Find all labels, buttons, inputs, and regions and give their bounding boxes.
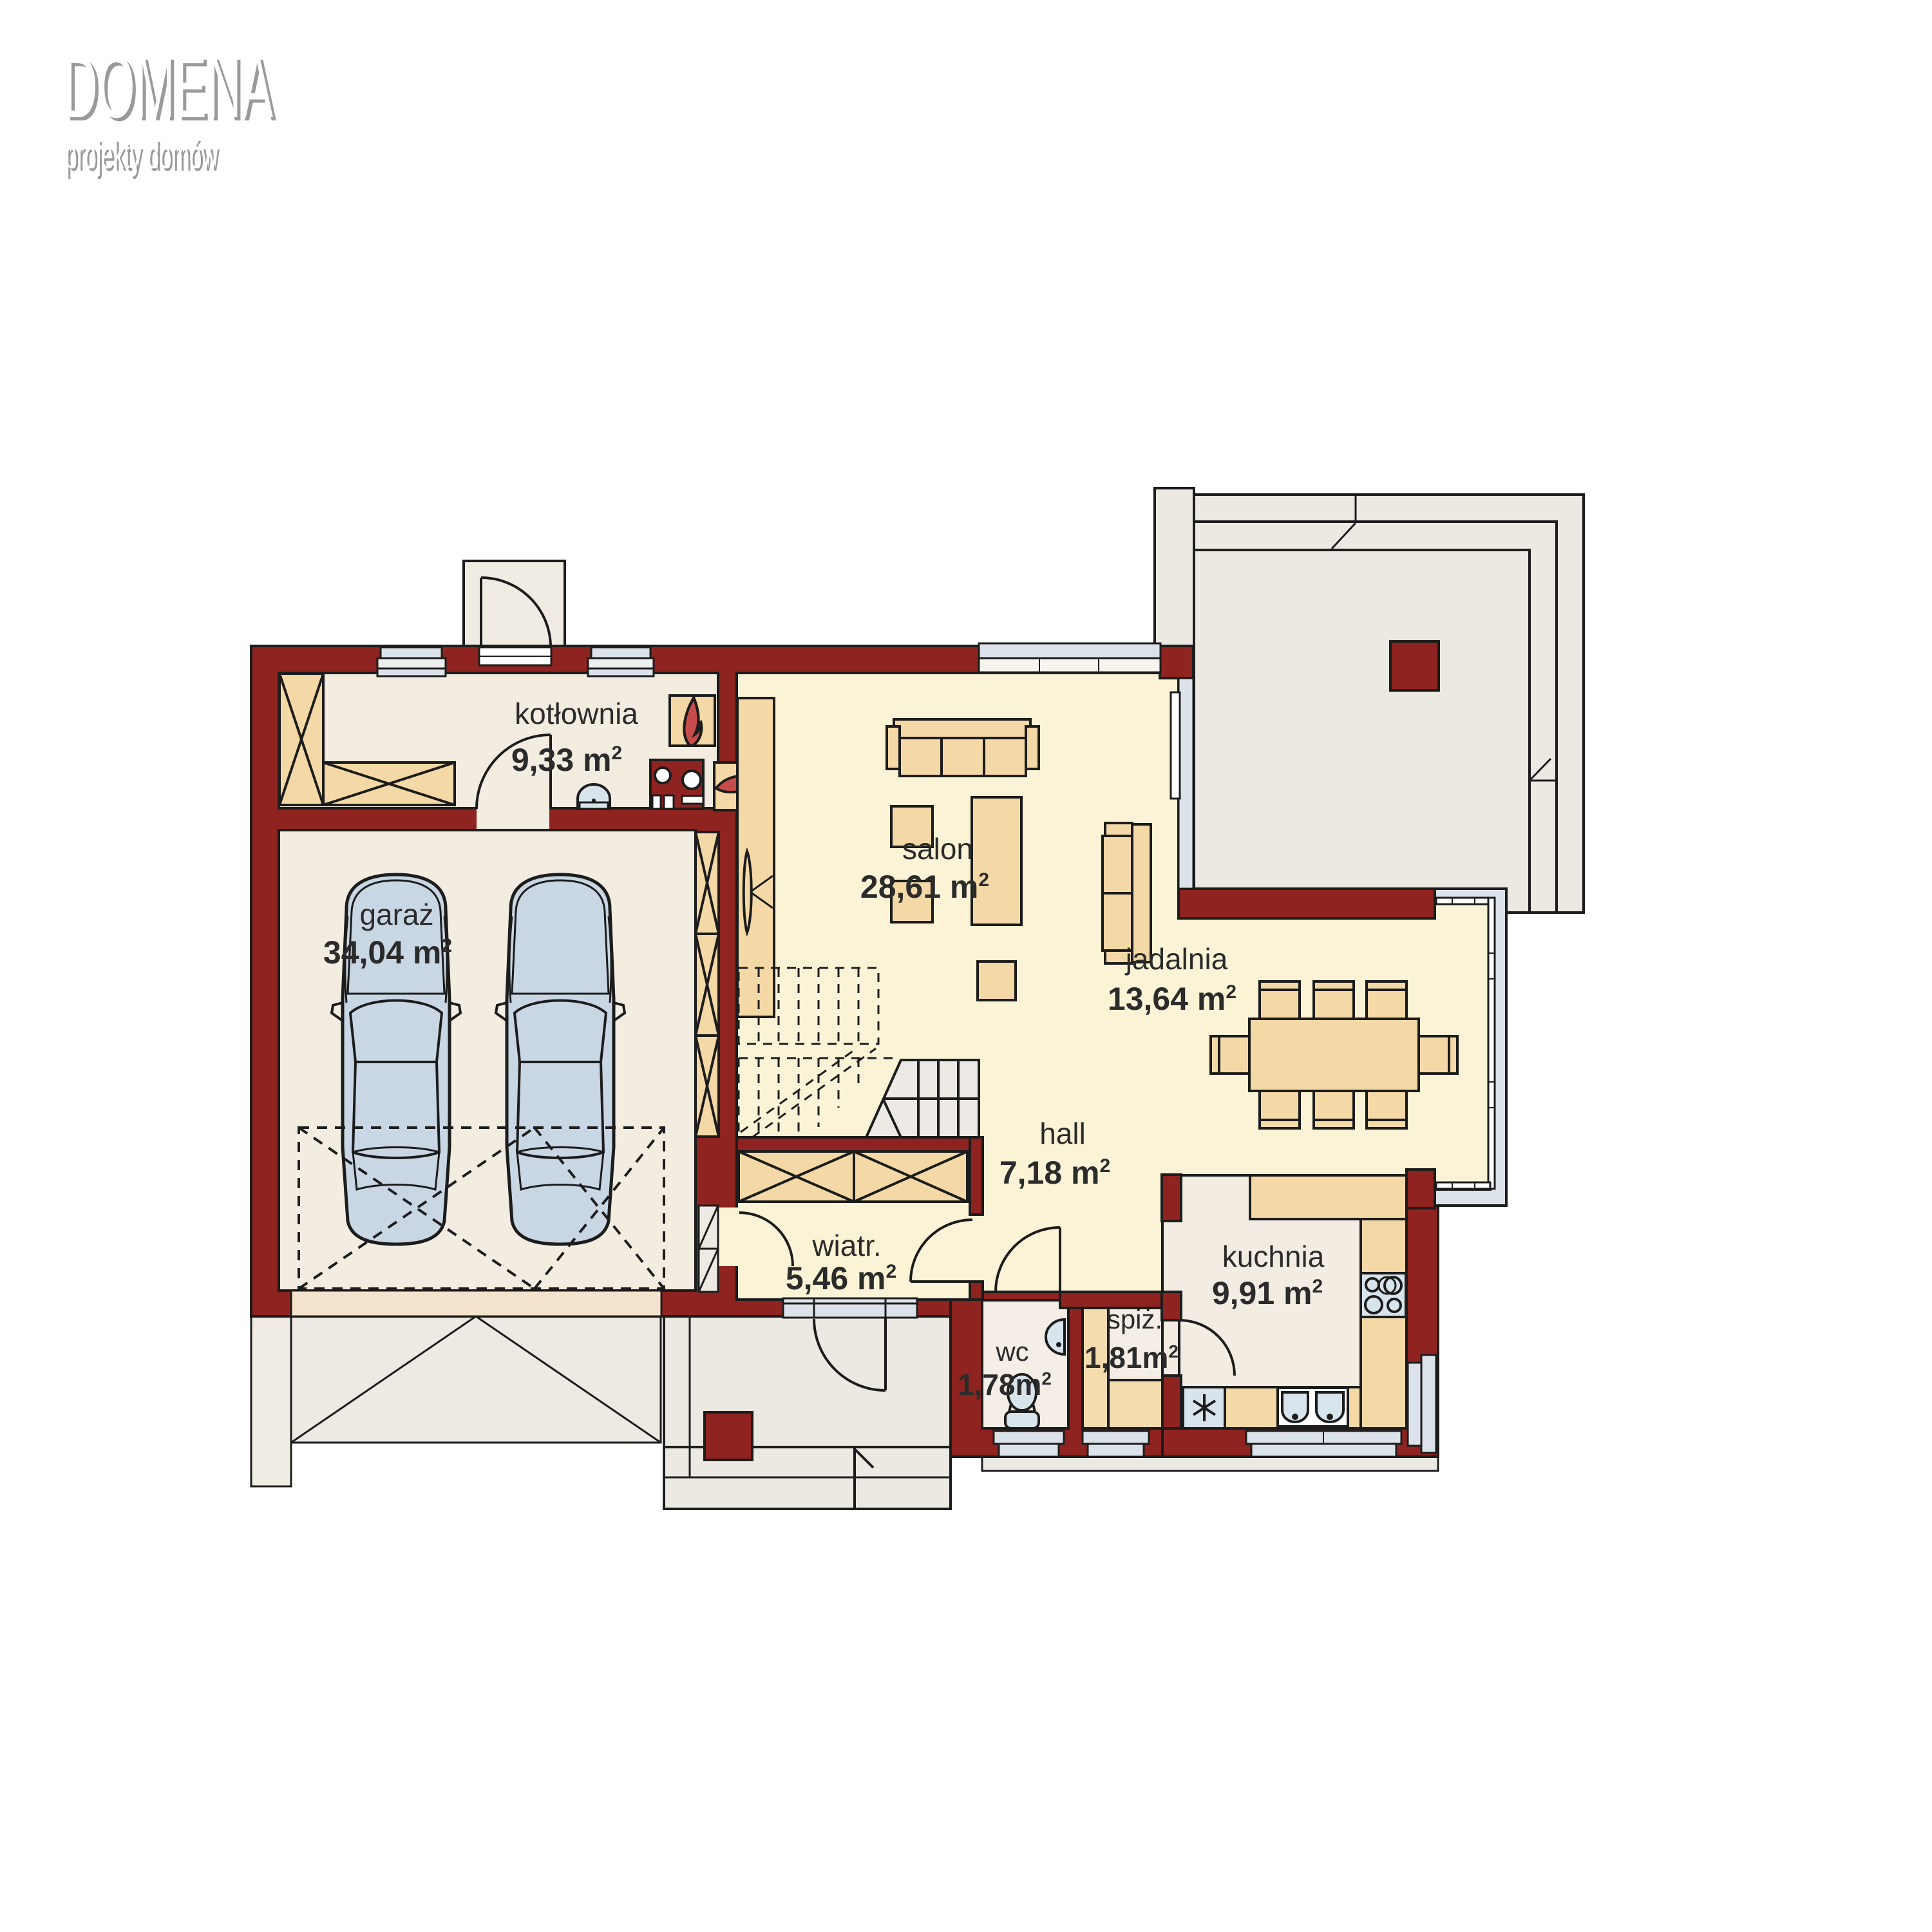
svg-text:wc: wc [995, 1336, 1028, 1367]
svg-text:spiż.: spiż. [1107, 1304, 1162, 1334]
svg-text:9,33 m2: 9,33 m2 [511, 742, 622, 778]
svg-text:salon: salon [902, 832, 973, 866]
svg-text:projekty domów: projekty domów [64, 133, 217, 177]
svg-text:jadalnia: jadalnia [1124, 942, 1228, 976]
svg-text:hall: hall [1039, 1117, 1086, 1150]
svg-text:DOMENA: DOMENA [63, 38, 273, 137]
svg-text:9,91 m2: 9,91 m2 [1212, 1275, 1323, 1311]
svg-text:5,46 m2: 5,46 m2 [786, 1260, 896, 1296]
svg-text:7,18 m2: 7,18 m2 [999, 1155, 1110, 1191]
svg-text:kuchnia: kuchnia [1222, 1240, 1325, 1273]
svg-text:wiatr.: wiatr. [811, 1229, 881, 1262]
svg-text:13,64 m2: 13,64 m2 [1108, 981, 1236, 1017]
svg-text:28,61 m2: 28,61 m2 [860, 869, 989, 905]
svg-text:1,81m2: 1,81m2 [1084, 1341, 1179, 1374]
svg-text:1,78m2: 1,78m2 [958, 1368, 1052, 1401]
svg-text:kotłownia: kotłownia [515, 697, 638, 730]
svg-text:garaż: garaż [359, 898, 433, 931]
svg-text:34,04 m2: 34,04 m2 [323, 934, 452, 971]
